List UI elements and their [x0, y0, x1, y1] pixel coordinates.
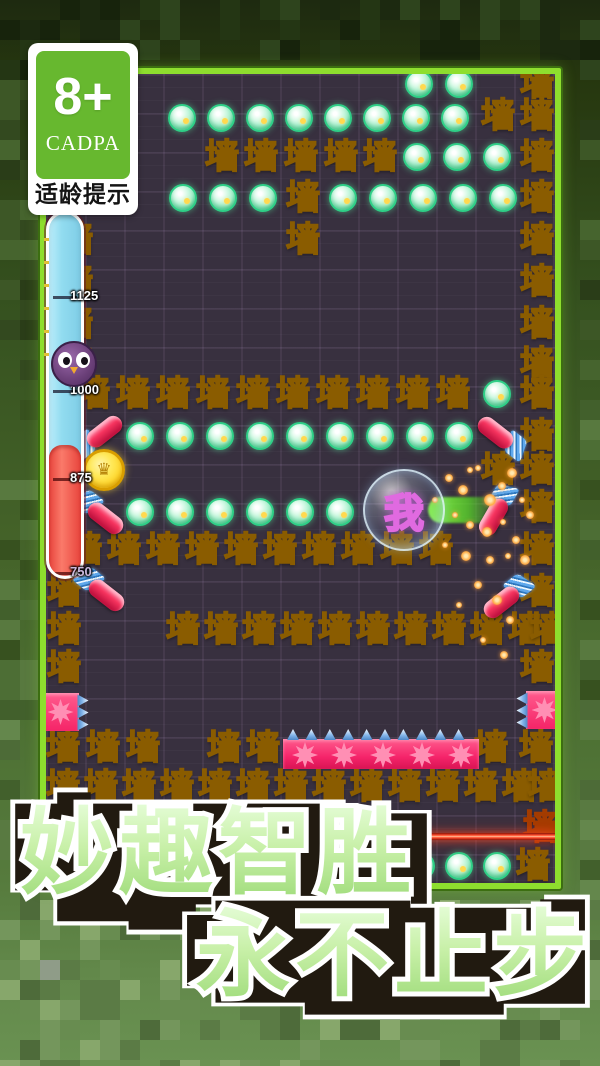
spark-particle [519, 497, 525, 503]
player-label: 我 [384, 481, 424, 539]
spike-icon [78, 707, 89, 719]
bar-tick-label: 1125 [70, 288, 98, 303]
gem [403, 143, 431, 171]
wall-char: 墙 [356, 377, 390, 411]
dart-body [83, 412, 126, 451]
wall-char: 墙 [246, 731, 280, 765]
wall-char: 墙 [520, 265, 554, 299]
gem [166, 422, 194, 450]
bar-mini-tick [44, 330, 49, 333]
gem [209, 184, 237, 212]
wall-char: 墙 [236, 377, 270, 411]
wall-char: 墙 [341, 533, 375, 567]
wall-char: 墙 [284, 140, 318, 174]
spike-icon [397, 729, 409, 740]
wall-char: 墙 [520, 99, 554, 133]
wall-char: 墙 [286, 181, 320, 215]
spark-particle [452, 512, 458, 518]
gem [246, 422, 274, 450]
gem [126, 498, 154, 526]
age-rating-value: 8+ [53, 71, 112, 123]
spark-particle [480, 637, 486, 643]
spark-particle [461, 551, 471, 561]
spark-particle [506, 616, 514, 624]
wall-char: 墙 [286, 223, 320, 257]
wall-char: 墙 [86, 731, 120, 765]
spark-particle [482, 527, 492, 537]
spike-icon [517, 693, 528, 705]
wall-char: 墙 [263, 533, 297, 567]
spark-particle [486, 556, 494, 564]
age-rating-org: CADPA [46, 131, 120, 156]
starburst-icon [448, 742, 474, 768]
dart-body [85, 576, 128, 615]
gem [449, 184, 477, 212]
spike-icon [416, 729, 428, 740]
gem [402, 104, 430, 132]
wall-char: 墙 [46, 731, 80, 765]
spark-particle [458, 485, 468, 495]
wall-char: 墙 [156, 377, 190, 411]
wall-char: 墙 [196, 377, 230, 411]
wall-char: 墙 [520, 223, 554, 257]
player-bubble[interactable]: 我 [363, 469, 445, 551]
pixel-blocks [0, 0, 20, 20]
owl-eye-left [58, 352, 72, 368]
spike-icon [453, 729, 465, 740]
wall-char: 墙 [520, 651, 554, 685]
slogan-text: 永不止步 [196, 896, 592, 1014]
spark-particle [520, 555, 530, 565]
spike-icon [517, 717, 528, 729]
spark-particle [526, 511, 534, 519]
wall-char: 墙 [126, 731, 160, 765]
spark-particle [467, 467, 473, 473]
gem [246, 104, 274, 132]
owl-beak [70, 367, 78, 374]
spark-particle [445, 474, 453, 482]
bar-mini-tick [44, 261, 49, 264]
spike-icon [342, 729, 354, 740]
spike-icon [287, 729, 299, 740]
bar-mini-tick [44, 307, 49, 310]
wall-char: 墙 [146, 533, 180, 567]
bar-mini-tick [44, 353, 49, 356]
spike-icon [361, 729, 373, 740]
spark-particle [466, 521, 474, 529]
gem [483, 143, 511, 171]
spark-particle [507, 468, 517, 478]
wall-char: 墙 [464, 770, 498, 804]
spark-particle [512, 536, 520, 544]
wall-char: 墙 [528, 770, 561, 804]
gem [369, 184, 397, 212]
spike-block [42, 693, 79, 731]
gem [286, 498, 314, 526]
spark-particle [474, 581, 482, 589]
gem [166, 498, 194, 526]
gem [409, 184, 437, 212]
gem [406, 422, 434, 450]
spike-icon [78, 695, 89, 707]
wall-char: 墙 [520, 181, 554, 215]
spark-particle [456, 602, 462, 608]
wall-char: 墙 [519, 731, 553, 765]
bar-mini-tick [44, 238, 49, 241]
gem [405, 70, 433, 98]
gem [206, 422, 234, 450]
wall-char: 墙 [520, 377, 554, 411]
owl-avatar [51, 341, 97, 387]
gem [366, 422, 394, 450]
wall-char: 墙 [324, 140, 358, 174]
wall-char: 墙 [280, 613, 314, 647]
wall-char: 墙 [516, 849, 550, 883]
wall-char: 墙 [436, 377, 470, 411]
spark-particle [475, 465, 481, 471]
gem [445, 422, 473, 450]
gem [169, 184, 197, 212]
wall-char: 墙 [474, 731, 508, 765]
starburst-icon [331, 742, 357, 768]
gem [246, 498, 274, 526]
age-rating-caption: 适龄提示 [28, 175, 138, 209]
wall-char: 墙 [396, 377, 430, 411]
wall-char: 墙 [205, 140, 239, 174]
gem [249, 184, 277, 212]
spark-particle [442, 542, 448, 548]
gem [286, 422, 314, 450]
gem [363, 104, 391, 132]
wall-char: 墙 [116, 377, 150, 411]
wall-char: 墙 [207, 731, 241, 765]
wall-char: 墙 [520, 453, 554, 487]
spark-particle [484, 494, 496, 506]
spike-strip [283, 729, 479, 769]
gem [445, 852, 473, 880]
gem [207, 104, 235, 132]
gem [326, 422, 354, 450]
wall-char: 墙 [520, 140, 554, 174]
gem [324, 104, 352, 132]
dart [469, 479, 525, 543]
gem [329, 184, 357, 212]
gem [445, 70, 473, 98]
gem [489, 184, 517, 212]
wall-char: 墙 [316, 377, 350, 411]
gem [206, 498, 234, 526]
spike-icon [324, 729, 336, 740]
starburst-icon [370, 742, 396, 768]
wall-char: 墙 [166, 613, 200, 647]
bar-mini-tick [44, 284, 49, 287]
spark-particle [498, 482, 506, 490]
spark-particle [500, 651, 508, 659]
gem [483, 380, 511, 408]
progress-bar-red-segment [49, 445, 81, 576]
wall-char: 墙 [242, 613, 276, 647]
spark-particle [505, 553, 511, 559]
wall-char: 墙 [356, 613, 390, 647]
gem [326, 498, 354, 526]
gem [285, 104, 313, 132]
slogan-line-2: 永不止步 永不止步 [178, 892, 594, 1022]
starburst-icon [48, 699, 74, 725]
wall-char: 墙 [276, 377, 310, 411]
age-rating-panel: 8+ CADPA [36, 51, 130, 179]
spike-icon [379, 729, 391, 740]
spike-icon [517, 705, 528, 717]
wall-char: 墙 [224, 533, 258, 567]
gem [483, 852, 511, 880]
wall-char: 墙 [185, 533, 219, 567]
wall-char: 墙 [302, 533, 336, 567]
owl-eye-right [76, 352, 90, 368]
gem [168, 104, 196, 132]
gem [443, 143, 471, 171]
gem [126, 422, 154, 450]
wall-char: 墙 [432, 613, 466, 647]
wall-char: 墙 [481, 99, 515, 133]
starburst-icon [292, 742, 318, 768]
wall-char: 墙 [244, 140, 278, 174]
wall-char: 墙 [47, 651, 81, 685]
wall-char: 墙 [318, 613, 352, 647]
wall-char: 墙 [204, 613, 238, 647]
starburst-icon [409, 742, 435, 768]
game-screen[interactable]: 墙墙墙墙墙墙墙墙墙墙墙墙墙墙墙墙墙墙墙墙墙墙墙墙墙墙墙墙墙墙墙墙墙墙墙墙墙墙墙墙… [0, 0, 600, 1066]
gem [441, 104, 469, 132]
bar-tick-label: 875 [70, 470, 92, 485]
spark-particle [492, 595, 502, 605]
spike-block [526, 691, 561, 729]
age-rating-badge: 8+ CADPA 适龄提示 [28, 43, 138, 215]
spike-icon [305, 729, 317, 740]
wall-char: 墙 [394, 613, 428, 647]
wall-char: 墙 [520, 307, 554, 341]
spike-icon [434, 729, 446, 740]
bar-tick-label: 750 [70, 564, 92, 579]
starburst-icon [532, 697, 558, 723]
wall-char: 墙 [530, 613, 561, 647]
wall-char: 墙 [47, 613, 81, 647]
spark-particle [500, 519, 506, 525]
wall-char: 墙 [363, 140, 397, 174]
